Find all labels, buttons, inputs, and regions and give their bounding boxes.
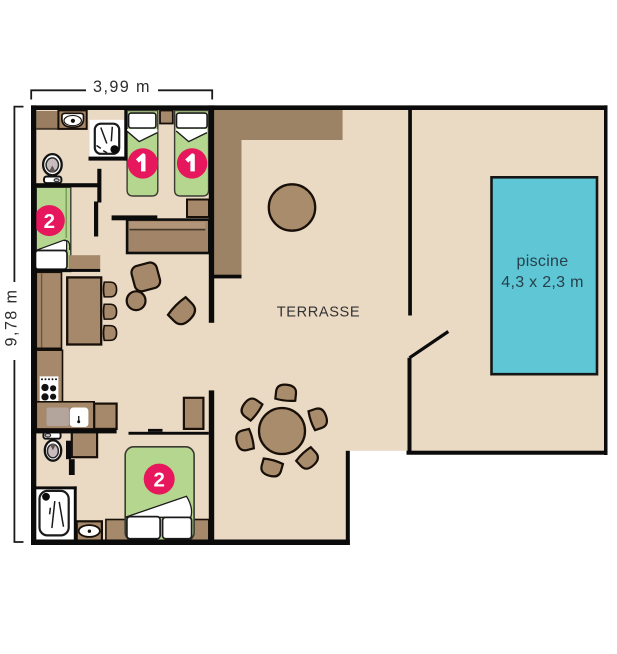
svg-text:2: 2 [44,210,55,233]
svg-text:3,99 m: 3,99 m [93,78,151,96]
svg-text:TERRASSE: TERRASSE [277,305,360,321]
svg-text:9,78 m: 9,78 m [2,289,20,347]
svg-text:piscine: piscine [517,253,569,270]
svg-text:2: 2 [153,468,164,491]
svg-text:4,3 x 2,3 m: 4,3 x 2,3 m [501,274,583,291]
